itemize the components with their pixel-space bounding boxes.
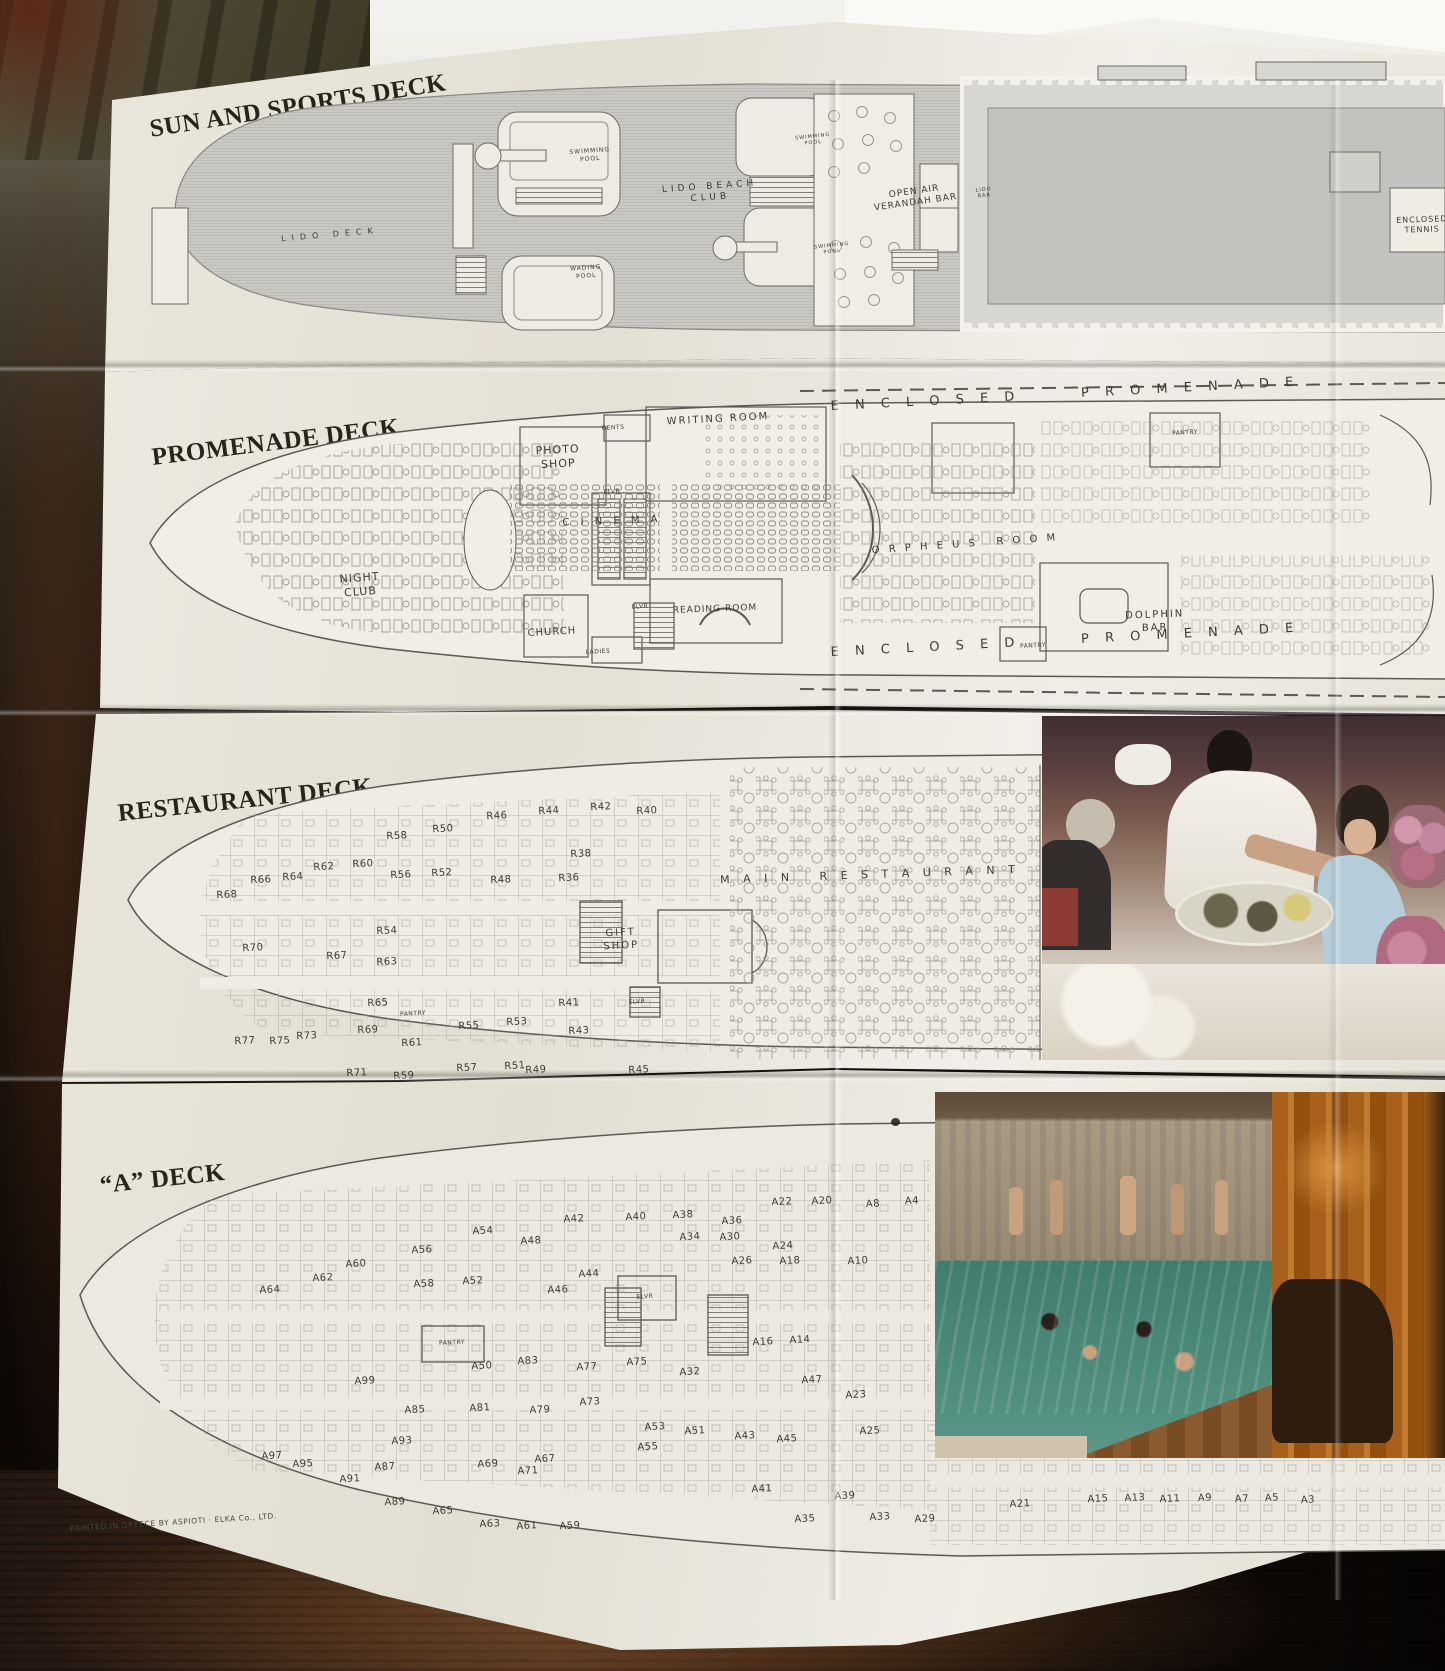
cabin-label: A62	[312, 1272, 334, 1286]
pool-water-swimmers	[935, 1260, 1272, 1414]
cabin-label: R40	[636, 805, 658, 819]
label-pantry: PANTRY	[439, 1339, 465, 1348]
bather-figure	[1120, 1176, 1135, 1235]
label-elevator: ELVR	[631, 603, 648, 611]
bather-figure	[1171, 1184, 1184, 1235]
cabin-label: A85	[404, 1404, 426, 1418]
cabin-label: R63	[376, 956, 398, 970]
cabin-label: A81	[469, 1402, 491, 1416]
cabin-label: R43	[568, 1025, 590, 1039]
cabin-label: A36	[721, 1215, 743, 1229]
cabin-label: A45	[776, 1433, 798, 1447]
cabin-label: R64	[282, 871, 304, 885]
cabin-label: A15	[1087, 1493, 1109, 1507]
cabin-label: R68	[216, 889, 238, 903]
label-elevator: ELVR	[603, 488, 620, 496]
label-lido-bar: LIDO BAR	[975, 186, 992, 200]
promenade-deck-plan: E N C L O S E D P R O M E N A D EWRITING…	[140, 375, 1445, 705]
label-swimming-pool: SWIMMING POOL	[795, 132, 831, 148]
label-elevator: ELVR	[636, 1293, 653, 1301]
indoor-pool-photo	[935, 1092, 1272, 1458]
cabin-label: A4	[905, 1195, 920, 1208]
cabin-label: A79	[529, 1404, 551, 1418]
woman-face	[1344, 819, 1376, 853]
cabin-label: R60	[352, 858, 374, 872]
cabin-label: A46	[547, 1284, 569, 1298]
cabin-label: R53	[506, 1016, 528, 1030]
pool-edge	[935, 1436, 1087, 1458]
cabin-label: A60	[345, 1258, 367, 1272]
label-swimming-pool: SWIMMING POOL	[569, 146, 611, 164]
cabin-label: A87	[374, 1461, 396, 1475]
vertical-fold-crease	[1328, 80, 1342, 1600]
label-cinema: C I N E M A	[562, 514, 661, 530]
cabin-label: A11	[1159, 1493, 1181, 1507]
bather-figure	[1009, 1187, 1022, 1235]
cabin-label: A32	[679, 1366, 701, 1380]
panel-fold	[0, 704, 1445, 716]
cabin-label: R54	[376, 925, 398, 939]
cabin-label: A7	[1235, 1493, 1250, 1506]
cabin-label: A55	[637, 1441, 659, 1455]
cabin-label: A38	[672, 1209, 694, 1223]
cabin-label: A50	[471, 1360, 493, 1374]
label-photo-shop: PHOTO SHOP	[535, 442, 580, 472]
label-pantry: PANTRY	[400, 1010, 426, 1019]
cabin-label: A33	[869, 1511, 891, 1525]
cabin-label: R56	[390, 869, 412, 883]
cabin-label: A41	[751, 1483, 773, 1497]
cabin-label: R50	[432, 823, 454, 837]
cabin-label: R55	[458, 1020, 480, 1034]
label-night-club: NIGHT CLUB	[339, 570, 381, 600]
cabin-label: R41	[558, 997, 580, 1011]
label-lido-deck: LIDO DECK	[281, 226, 379, 244]
tablecloth	[1042, 964, 1445, 1060]
panel-fold	[0, 360, 1445, 372]
cabin-label: R52	[431, 867, 453, 881]
cabin-label: A58	[413, 1278, 435, 1292]
brochure-photo: SUN AND SPORTS DECK PROMENADE DECK RESTA…	[0, 0, 1445, 1671]
cabin-label: A5	[1265, 1492, 1280, 1505]
cabin-label: A67	[534, 1453, 556, 1467]
cabin-label: A75	[626, 1356, 648, 1370]
bather-figure	[1050, 1180, 1063, 1235]
label-elevator: ELVR	[628, 998, 645, 1006]
paper-speck	[891, 1118, 900, 1126]
cabin-label: R70	[242, 942, 264, 956]
sun-deck-labels: LIDO DECKSWIMMING POOLWADING POOLLIDO BE…	[150, 60, 1445, 360]
cabin-label: A52	[462, 1275, 484, 1289]
cabin-label: A95	[292, 1458, 314, 1472]
cabin-label: R42	[590, 801, 612, 815]
promenade-deck-labels: E N C L O S E D P R O M E N A D EWRITING…	[140, 375, 1445, 705]
bather-figure	[1215, 1180, 1228, 1235]
label-orpheus-room: O R P H E U S R O O M	[871, 532, 1058, 558]
cabin-label: R62	[313, 861, 335, 875]
label-writing-room: WRITING ROOM	[666, 411, 769, 429]
cabin-label: A53	[644, 1421, 666, 1435]
cabin-label: A29	[914, 1513, 936, 1527]
label-main-restaurant: M A I N R E S T A U R A N T	[720, 863, 1020, 887]
label-ladies: LADIES	[586, 648, 611, 657]
label-church: CHURCH	[527, 625, 576, 640]
sauna-photo	[1272, 1092, 1445, 1458]
sauna-shadow	[1421, 1092, 1445, 1458]
cabin-label: A64	[259, 1284, 281, 1298]
cabin-label: A3	[1301, 1494, 1316, 1507]
cabin-label: R46	[486, 810, 508, 824]
officer-jacket	[1115, 744, 1171, 785]
cabin-label: R69	[357, 1024, 379, 1038]
cabin-label: R44	[538, 805, 560, 819]
cabin-label: A25	[859, 1425, 881, 1439]
cabin-label: A13	[1124, 1492, 1146, 1506]
cabin-label: A59	[559, 1520, 581, 1534]
cabin-label: A61	[516, 1520, 538, 1534]
cabin-label: A26	[731, 1255, 753, 1269]
label-reading-room: READING ROOM	[673, 603, 758, 617]
cabin-label: A9	[1198, 1492, 1213, 1505]
cabin-label: A10	[847, 1255, 869, 1269]
red-banquette	[1042, 888, 1078, 946]
label-enclosed-tennis: ENCLOSED TENNIS	[1396, 214, 1445, 236]
cabin-label: A44	[578, 1268, 600, 1282]
cabin-label: R67	[326, 950, 348, 964]
cabin-label: A22	[771, 1196, 793, 1210]
cabin-label: A83	[517, 1355, 539, 1369]
vertical-fold-crease	[828, 80, 842, 1600]
cabin-label: A65	[432, 1505, 454, 1519]
cabin-label: A71	[517, 1465, 539, 1479]
cabin-label: A23	[845, 1389, 867, 1403]
cabin-label: A93	[391, 1435, 413, 1449]
cabin-label: R61	[401, 1037, 423, 1051]
cabin-label: R66	[250, 874, 272, 888]
flowers-top	[1389, 805, 1445, 888]
cabin-label: R36	[558, 872, 580, 886]
cabin-label: A54	[472, 1225, 494, 1239]
cabin-label: A56	[411, 1244, 433, 1258]
cabin-label: A77	[576, 1361, 598, 1375]
food-platter	[1175, 881, 1334, 945]
cabin-label: R65	[367, 997, 389, 1011]
cabin-label: A40	[625, 1211, 647, 1225]
label-open-air-verandah-bar: OPEN AIR VERANDAH BAR	[872, 181, 958, 215]
cabin-label: A89	[384, 1496, 406, 1510]
cabin-label: A97	[261, 1450, 283, 1464]
cabin-label: A48	[520, 1235, 542, 1249]
cabin-label: A43	[734, 1430, 756, 1444]
cabin-label: A47	[801, 1374, 823, 1388]
label-enclosed-promenade-bottom: E N C L O S E D P R O M E N A D E	[830, 621, 1299, 662]
cabin-label: A18	[779, 1255, 801, 1269]
cabin-label: A24	[772, 1240, 794, 1254]
label-enclosed-promenade-top: E N C L O S E D P R O M E N A D E	[830, 375, 1299, 416]
cabin-label: A91	[339, 1473, 361, 1487]
cabin-label: R58	[386, 830, 408, 844]
label-lido-beach-club: LIDO BEACH CLUB	[662, 178, 759, 207]
cabin-label: A35	[794, 1513, 816, 1527]
cabin-label: A21	[1009, 1498, 1031, 1512]
cabin-label: A51	[684, 1425, 706, 1439]
cabin-label: A63	[479, 1518, 501, 1532]
cabin-label: R75	[269, 1035, 291, 1049]
cabin-label: R48	[490, 874, 512, 888]
cabin-label: A73	[579, 1396, 601, 1410]
label-pantry: PANTRY	[1172, 429, 1198, 438]
cabin-label: R77	[234, 1035, 256, 1049]
dining-room-photo	[1042, 716, 1445, 1060]
cabin-label: A99	[354, 1375, 376, 1389]
label-gift-shop: GIFT SHOP	[602, 927, 639, 954]
cabin-label: A16	[752, 1336, 774, 1350]
label-gents: GENTS	[601, 424, 624, 433]
cabin-label: R73	[296, 1030, 318, 1044]
sun-deck-plan: LIDO DECKSWIMMING POOLWADING POOLLIDO BE…	[150, 60, 1445, 360]
cabin-label: A34	[679, 1231, 701, 1245]
panel-fold	[0, 1070, 1445, 1082]
cabin-label: A30	[719, 1231, 741, 1245]
cabin-label: A14	[789, 1334, 811, 1348]
cabin-label: A42	[563, 1213, 585, 1227]
cabin-label: R38	[570, 848, 592, 862]
cabin-label: A69	[477, 1458, 499, 1472]
cabin-label: A8	[866, 1198, 881, 1211]
label-wading-pool: WADING POOL	[570, 263, 602, 280]
